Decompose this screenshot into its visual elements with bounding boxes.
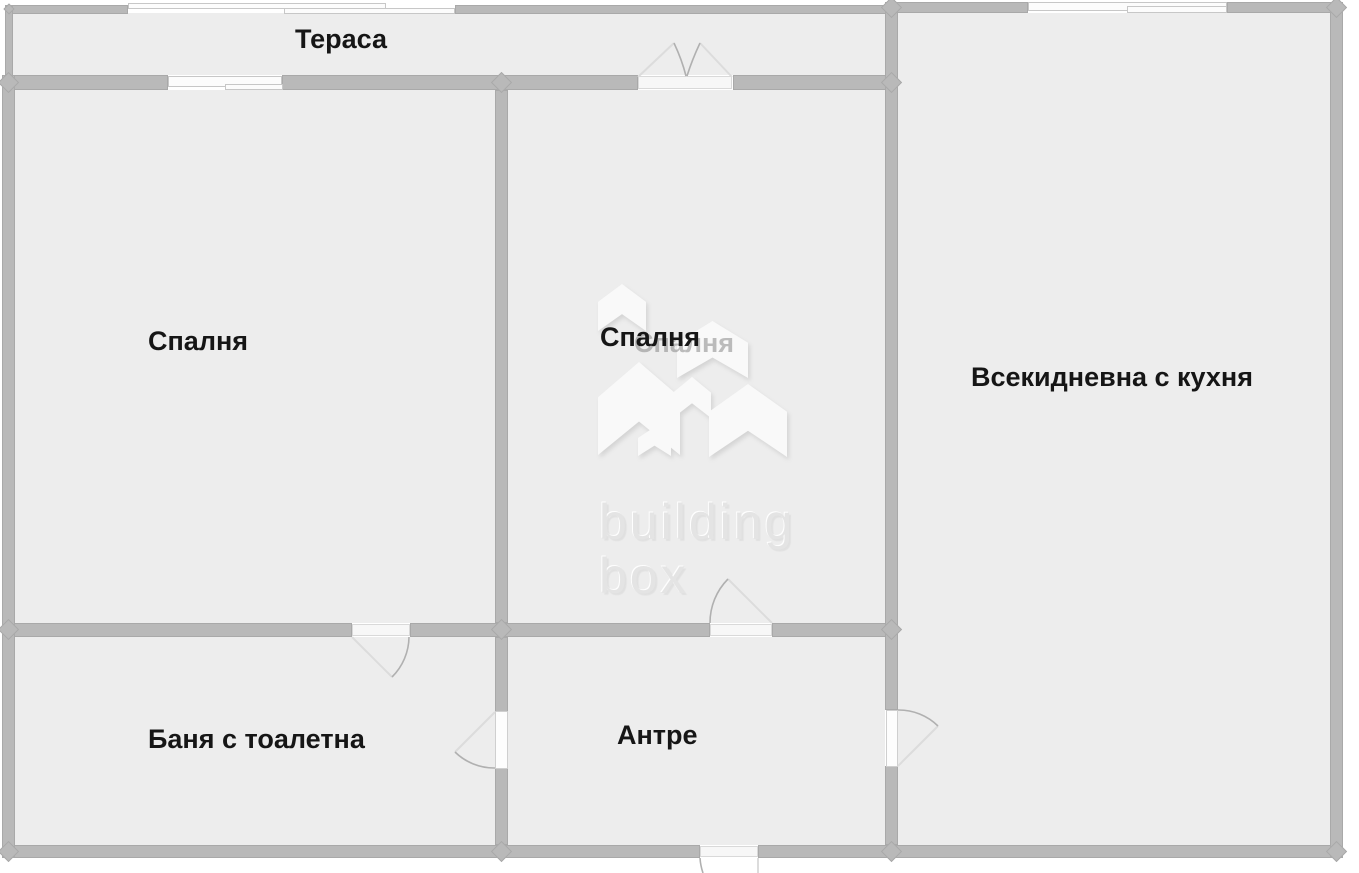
wall-middle-segment-1: [2, 623, 352, 637]
wall-bath-hall-2: [495, 768, 508, 845]
wall-outer-left: [2, 75, 15, 858]
wall-top-segment-1: [2, 75, 168, 90]
door-leaf-hallway-living: [886, 710, 898, 767]
wall-top-segment-3: [733, 75, 898, 90]
terrace-railing-window: [284, 8, 455, 14]
wall-middle-segment-3: [772, 623, 898, 637]
room-floor-terrace: [13, 13, 885, 75]
wall-bottom-segment-2: [758, 845, 1343, 858]
door-sill-bedroom-bathroom: [352, 624, 410, 636]
wall-top-segment-2: [282, 75, 638, 90]
wall-terrace-railing-left: [5, 5, 128, 14]
room-label-bedroom-middle: Спалня: [600, 323, 700, 351]
watermark-text-line2: box: [599, 547, 689, 605]
room-label-hallway: Антре: [617, 721, 698, 749]
wall-living-top-1: [885, 2, 1028, 13]
wall-bath-hall-1: [495, 637, 508, 712]
bedroom-left-window: [225, 84, 283, 90]
door-sill-bedroom-hallway: [710, 624, 772, 636]
wall-middle-segment-2: [410, 623, 710, 637]
room-label-living-kitchen: Всекидневна с кухня: [971, 363, 1253, 391]
room-label-terrace: Тераса: [295, 25, 387, 53]
entrance-door-swing: [700, 858, 758, 873]
wall-outer-right: [1330, 2, 1343, 858]
room-label-bedroom-left: Спалня: [148, 327, 248, 355]
room-floor-living-kitchen: [898, 13, 1330, 845]
living-kitchen-window: [1127, 6, 1227, 13]
entrance-door-sill: [700, 846, 758, 857]
door-leaf-bathroom-hallway: [495, 711, 508, 769]
wall-living-left-2: [885, 766, 898, 845]
room-floor-bedroom-left: [15, 90, 495, 623]
wall-terrace-railing-right: [455, 5, 890, 14]
balcony-french-door-sill: [638, 76, 732, 89]
watermark-text-line1: building: [599, 493, 795, 551]
floor-plan: building box: [0, 0, 1359, 873]
wall-living-left-1: [885, 2, 898, 710]
room-label-bathroom: Баня с тоалетна: [148, 725, 365, 753]
wall-bottom-segment-1: [2, 845, 700, 858]
wall-bedroom-divider: [495, 90, 508, 623]
